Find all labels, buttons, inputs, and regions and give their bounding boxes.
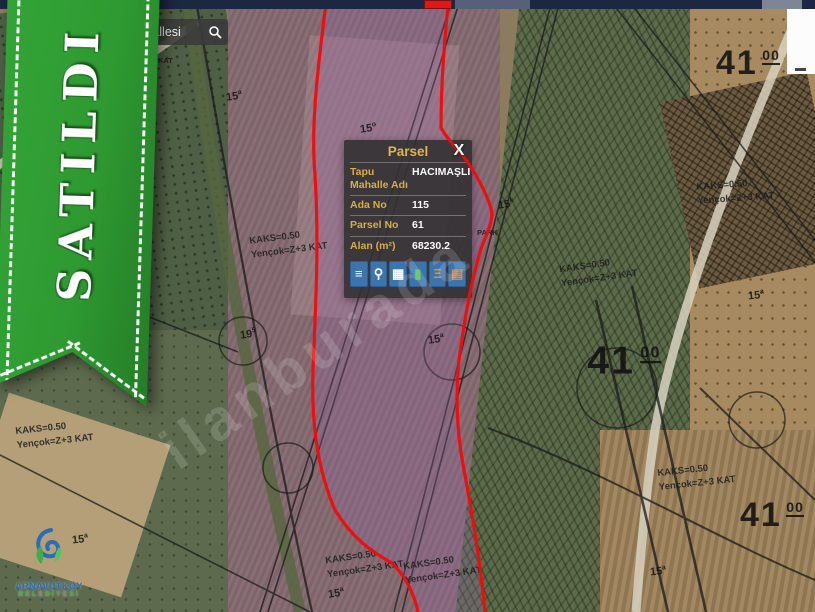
elevation-label: 15a [427, 332, 445, 347]
green-marker-icon: ▮ [414, 267, 421, 280]
popup-field-row: Parsel No61 [350, 215, 466, 235]
gis-map-viewer: KAKS=0.50Yençok=Z+3 KATKAKS=0.50Yençok=Z… [0, 0, 815, 612]
plan-number-label: 41 00 [740, 496, 804, 535]
top-bar-segment-1 [455, 0, 530, 9]
parcel-popup: Parsel Tapu Mahalle AdıHACIMAŞLIAda No11… [344, 140, 472, 298]
popup-field-value: HACIMAŞLI [412, 166, 470, 192]
zone-label: KAKS=0.50Yençok=Z+3 KAT [657, 459, 736, 494]
logo-text-line1: ARNAVUTKÖY [6, 581, 92, 591]
logo-text-line2: BELEDİYESİ [6, 591, 92, 598]
popup-toolbar: ≡⚲▦▮Ξ▤ [350, 256, 466, 287]
ribbon-dash-left [4, 0, 21, 420]
ribbon-dash-right [133, 0, 150, 424]
zone-label: KAKS=0.50Yençok=Z+3 KAT [558, 253, 638, 291]
popup-field-value: 68230.2 [412, 240, 466, 253]
plan-number-label: 41 00 [587, 339, 660, 384]
zone-label: KAKS=0.50Yençok=Z+3 KAT [249, 225, 329, 262]
popup-field-label: Parsel No [350, 219, 412, 232]
popup-button-document-e[interactable]: Ξ [429, 261, 447, 287]
search-icon[interactable] [208, 25, 222, 39]
elevation-label: 15a [649, 564, 666, 578]
popup-close-button[interactable]: X [449, 141, 469, 161]
collapsed-panel[interactable] [787, 8, 815, 74]
popup-button-location-pin[interactable]: ⚲ [370, 261, 388, 287]
elevation-label: 15o [359, 121, 377, 136]
popup-field-row: Tapu Mahalle AdıHACIMAŞLI [350, 162, 466, 195]
popup-field-value: 115 [412, 199, 466, 212]
location-pin-icon: ⚲ [374, 267, 384, 280]
ribbon-dash-notch-right [67, 340, 145, 399]
map-tiny-label: KAT [158, 56, 173, 65]
plan-number-label: 41 00 [716, 44, 780, 83]
zone-label: KAKS=0.50Yençok=Z+3 KAT [696, 175, 775, 208]
municipality-logo-icon [21, 524, 77, 576]
document-e-icon: Ξ [433, 267, 441, 280]
popup-button-green-marker[interactable]: ▮ [409, 261, 427, 287]
popup-button-menu[interactable]: ≡ [350, 261, 368, 287]
plan-number: 41 [740, 496, 782, 534]
elevation-label: 195 [239, 327, 257, 342]
plan-number-sup: 00 [762, 47, 780, 65]
top-bar-segment-2 [762, 0, 802, 9]
collapsed-panel-handle-icon [795, 68, 806, 71]
document-2-icon: ▤ [451, 267, 463, 280]
elevation-label: 15k [497, 197, 515, 212]
sold-ribbon-shape: SATILDI [0, 0, 160, 425]
municipality-logo: ARNAVUTKÖY BELEDİYESİ [6, 524, 92, 598]
emblem-icon: ▦ [392, 267, 404, 280]
popup-field-row: Alan (m²)68230.2 [350, 236, 466, 256]
plan-number: 41 [587, 339, 635, 383]
map-tiny-label: PARK [477, 228, 498, 237]
menu-icon: ≡ [355, 267, 363, 280]
plan-number-sup: 00 [640, 343, 660, 364]
plan-number-sup: 00 [786, 499, 804, 517]
popup-field-label: Alan (m²) [350, 240, 412, 253]
zone-label: KAKS=0.50Yençok=Z+3 KAT [324, 544, 404, 582]
sold-ribbon-label: SATILDI [47, 22, 110, 302]
sold-ribbon: SATILDI [0, 0, 160, 425]
plan-number: 41 [716, 44, 758, 82]
popup-button-document-2[interactable]: ▤ [448, 261, 466, 287]
elevation-label: 15a [327, 586, 345, 601]
popup-button-emblem[interactable]: ▦ [389, 261, 407, 287]
ribbon-dash-notch-left [0, 341, 80, 376]
popup-field-value: 61 [412, 219, 466, 232]
elevation-label: 15a [747, 288, 764, 302]
popup-rows: Tapu Mahalle AdıHACIMAŞLIAda No115Parsel… [350, 162, 466, 256]
popup-field-row: Ada No115 [350, 195, 466, 215]
popup-field-label: Ada No [350, 199, 412, 212]
zone-label: KAKS=0.50Yençok=Z+3 KAT [402, 550, 482, 588]
elevation-label: 15a [225, 89, 243, 104]
top-bar-red-chip [424, 0, 452, 9]
popup-field-label: Tapu Mahalle Adı [350, 166, 412, 192]
